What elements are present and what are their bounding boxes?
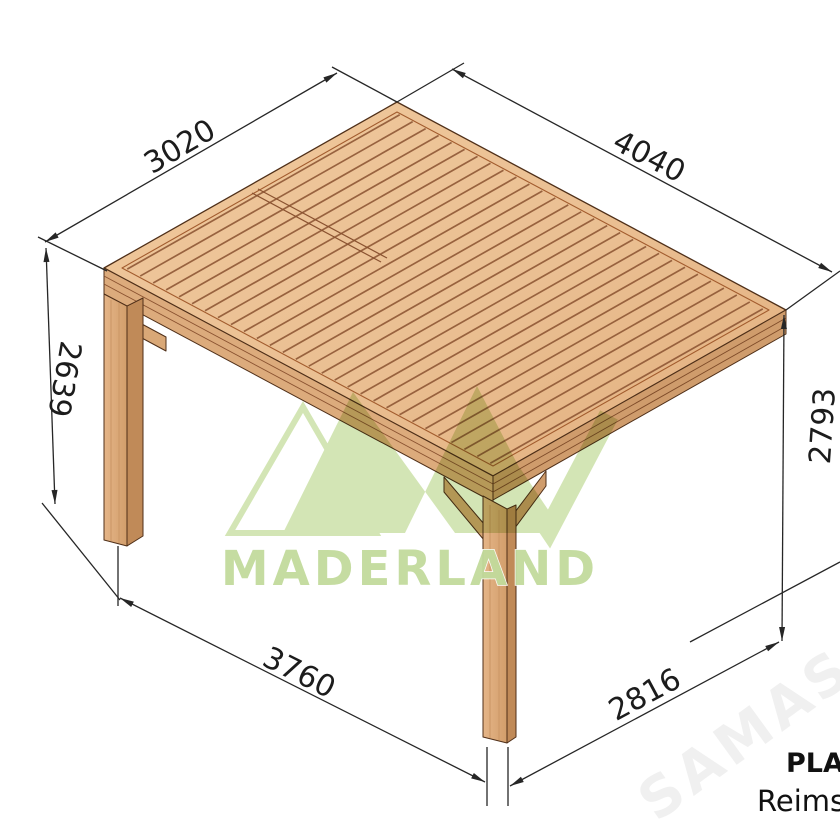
right-post-front-face (483, 496, 507, 743)
dimension-label-post-spacing: 3760 (257, 640, 341, 706)
extension-line (397, 63, 464, 102)
dimension-arrow (45, 232, 59, 242)
extension-line (690, 562, 840, 642)
dimension-arrow (510, 777, 524, 786)
product-name-model: Reims (757, 784, 840, 818)
dimension-arrow (765, 642, 779, 651)
pergola-structure (104, 102, 786, 743)
dimension-arrow (471, 773, 485, 782)
left-post (104, 294, 143, 546)
dimension-arrow (452, 69, 466, 78)
extension-line (38, 237, 107, 271)
technical-drawing: 3020 4040 2639 2793 3760 2816 MADERLAND … (0, 0, 840, 840)
logo-wordmark: MADERLAND (221, 541, 599, 597)
left-post-front-face (104, 294, 127, 546)
dimension-arrow (120, 598, 134, 607)
pergola-drawing-page: 3020 4040 2639 2793 3760 2816 MADERLAND … (0, 0, 840, 840)
dimension-label-post-to-wall: 2816 (603, 662, 687, 729)
product-name-bold: PLA (786, 748, 840, 779)
dimension-label-wall-height: 2793 (803, 387, 840, 466)
dimension-label-roof-width: 4040 (607, 124, 691, 190)
dimension-arrow (818, 263, 832, 272)
product-title: PLA Reims (757, 748, 840, 818)
dimension-arrow (779, 627, 785, 641)
dimension-label-post-height: 2639 (40, 338, 88, 419)
dimension-arrow (52, 490, 58, 504)
dimension-label-roof-depth: 3020 (138, 113, 222, 182)
left-post-side-face (127, 298, 143, 546)
right-post (483, 496, 516, 743)
extension-line (332, 67, 397, 102)
dimension-arrow (43, 248, 49, 262)
dimension-arrow (323, 73, 337, 83)
extension-line (786, 271, 840, 310)
